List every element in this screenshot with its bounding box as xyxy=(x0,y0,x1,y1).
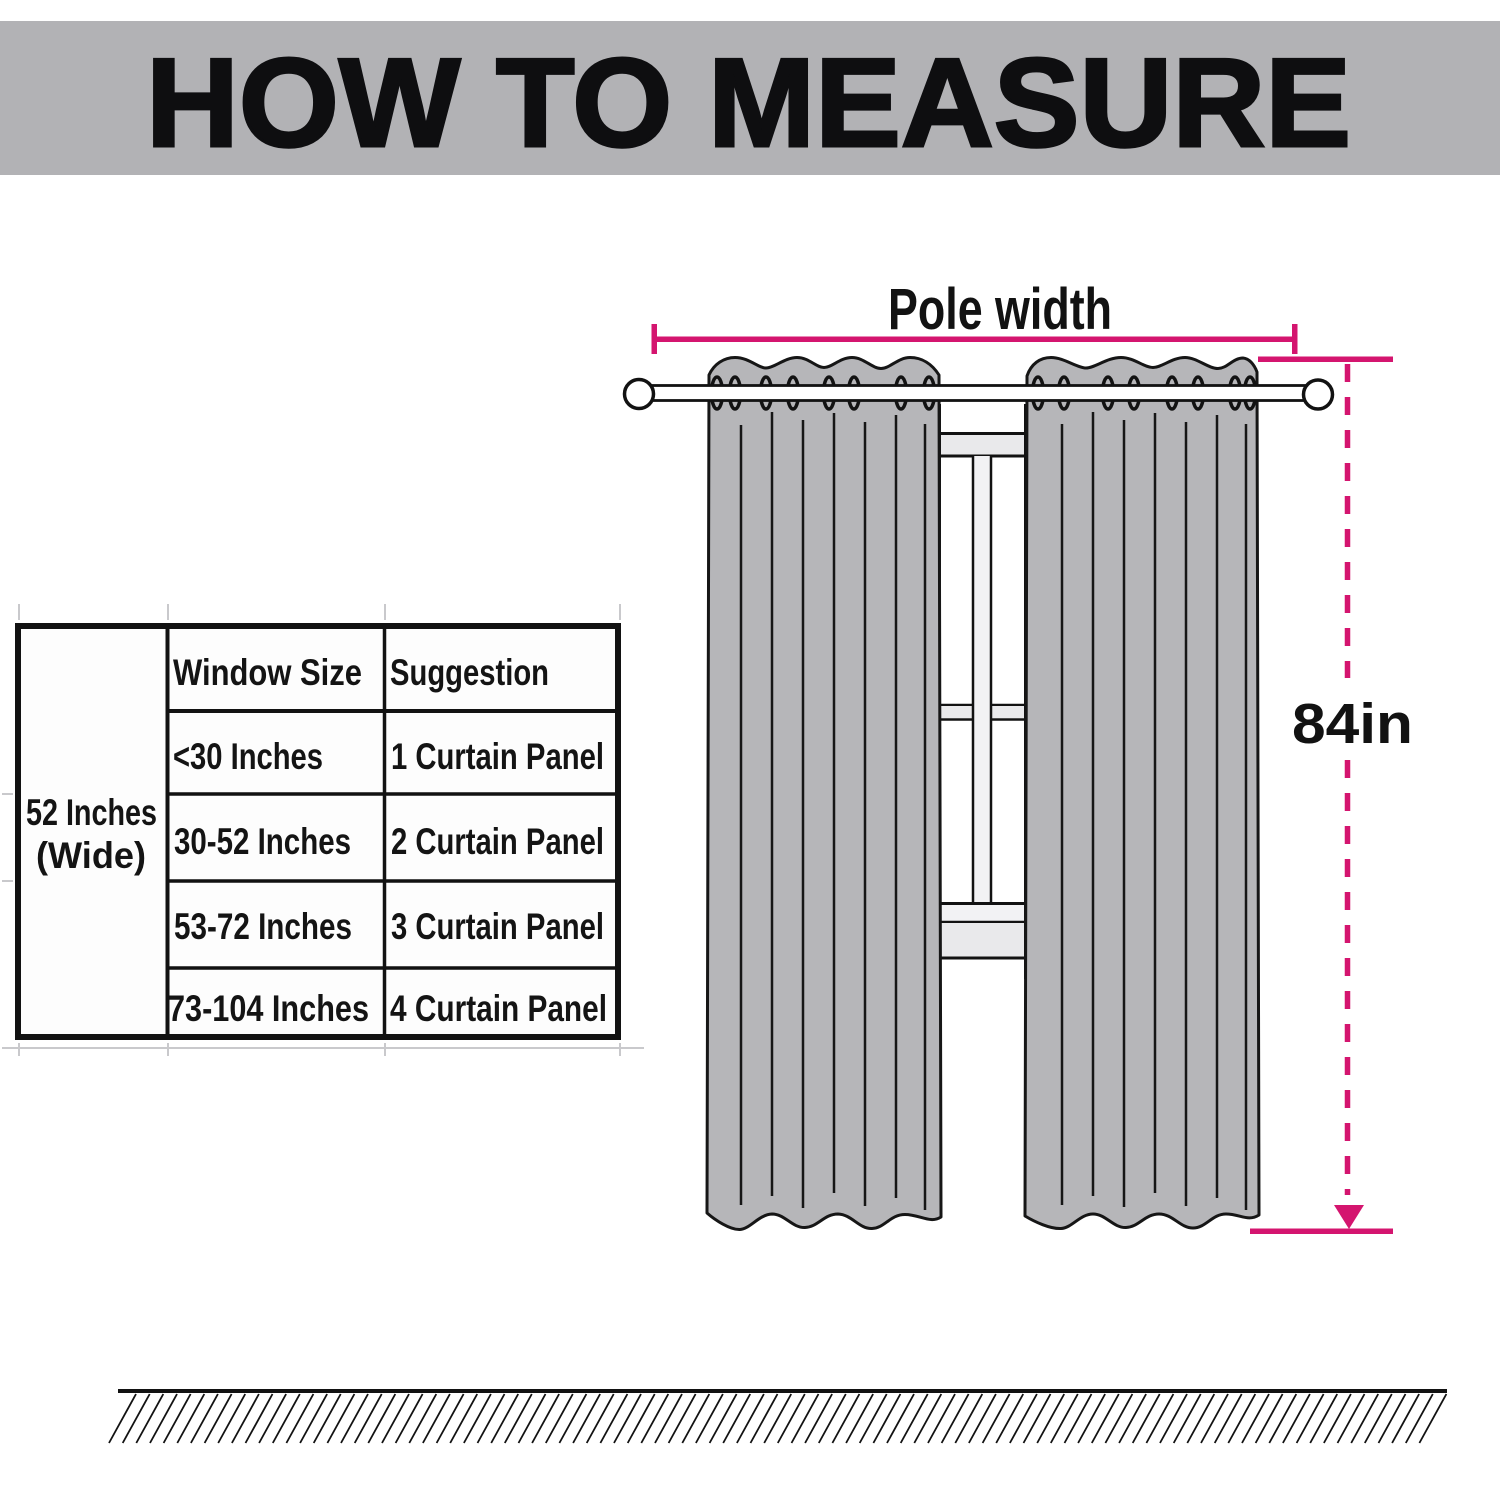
svg-text:Pole width: Pole width xyxy=(888,277,1112,342)
svg-text:HOW TO MEASURE: HOW TO MEASURE xyxy=(146,32,1351,173)
svg-text:73-104 Inches: 73-104 Inches xyxy=(168,988,369,1029)
svg-text:Window Size: Window Size xyxy=(173,652,362,693)
svg-text:53-72 Inches: 53-72 Inches xyxy=(174,906,352,947)
svg-text:(Wide): (Wide) xyxy=(36,835,146,876)
svg-text:1 Curtain Panel: 1 Curtain Panel xyxy=(391,736,604,777)
svg-text:<30 Inches: <30 Inches xyxy=(173,736,323,777)
svg-text:2 Curtain Panel: 2 Curtain Panel xyxy=(391,821,604,862)
svg-text:52 Inches: 52 Inches xyxy=(26,792,157,833)
svg-text:30-52 Inches: 30-52 Inches xyxy=(174,821,351,862)
svg-text:Suggestion: Suggestion xyxy=(390,652,549,693)
svg-text:3 Curtain Panel: 3 Curtain Panel xyxy=(391,906,604,947)
svg-text:84in: 84in xyxy=(1292,692,1413,756)
svg-text:4 Curtain Panel: 4 Curtain Panel xyxy=(390,988,607,1029)
